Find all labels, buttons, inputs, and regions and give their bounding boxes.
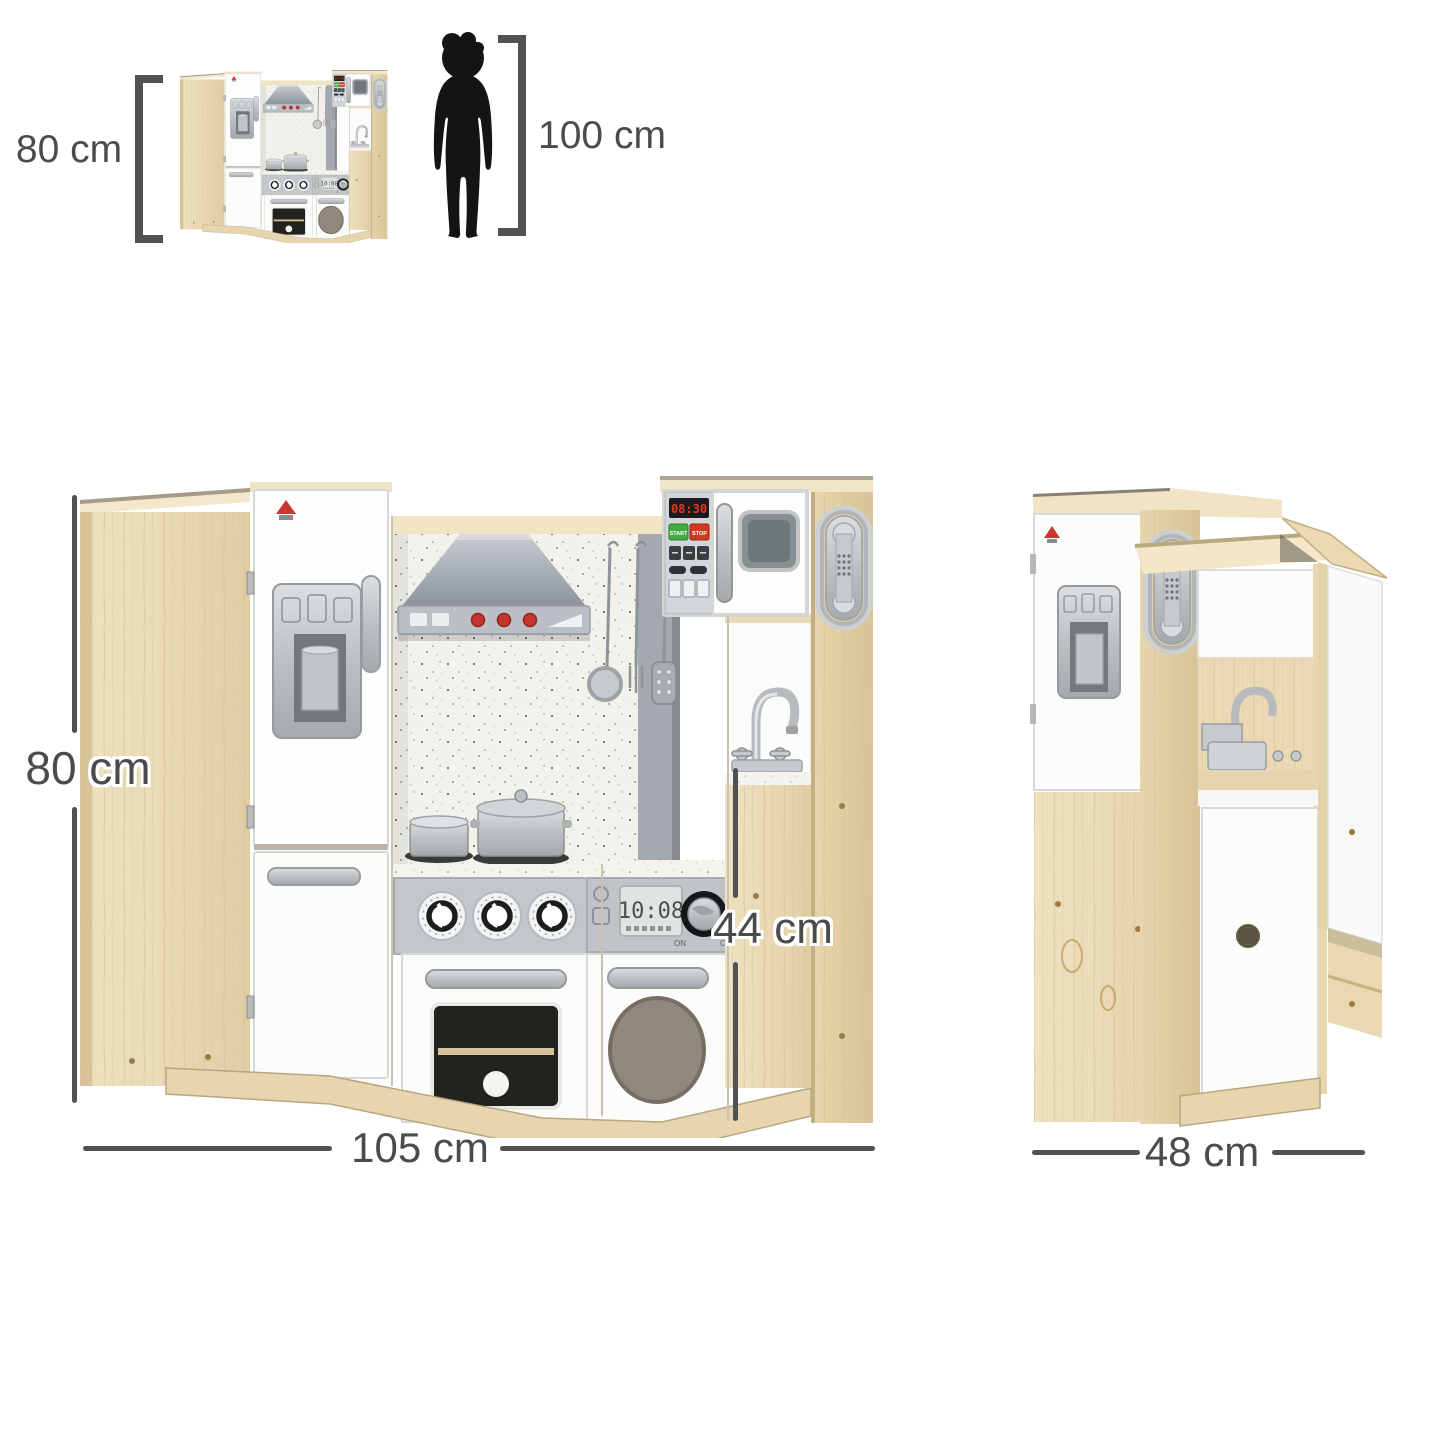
counter-height-dimension-line <box>733 962 738 1121</box>
counter-height-dimension-line <box>733 768 738 898</box>
height-dimension-line <box>72 495 77 733</box>
front-width-label: 105 cm <box>348 1126 492 1170</box>
width-dimension-line <box>500 1146 875 1151</box>
height-dimension-line <box>72 807 77 1103</box>
product-dimension-diagram: 10:08 ON OFF <box>0 0 1445 1445</box>
depth-dimension-line <box>1032 1150 1140 1155</box>
child-height-label: 100 cm <box>532 116 672 157</box>
thumbnail-height-label: 80 cm <box>10 130 128 171</box>
kitchen-side-view <box>1030 474 1390 1134</box>
front-height-label: 80 cm <box>16 744 160 792</box>
side-depth-label: 48 cm <box>1134 1130 1270 1174</box>
width-dimension-line <box>83 1146 332 1151</box>
child-silhouette-icon <box>424 28 502 246</box>
kitchen-front-view <box>80 476 875 1138</box>
depth-dimension-line <box>1272 1150 1365 1155</box>
counter-height-label: 44 cm <box>702 906 844 952</box>
kitchen-thumbnail <box>180 70 388 243</box>
